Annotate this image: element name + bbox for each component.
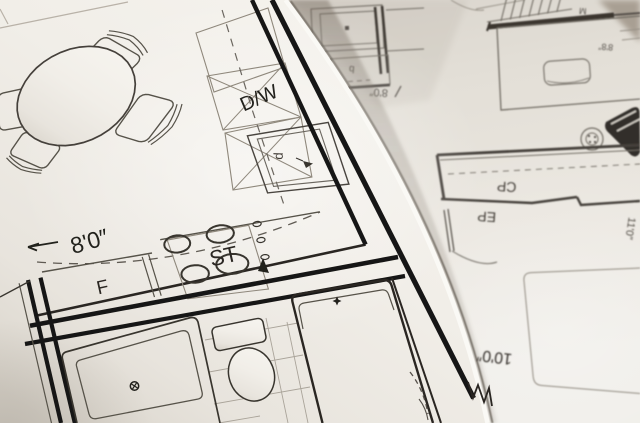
svg-text:M: M: [579, 6, 587, 16]
svg-text:d: d: [271, 152, 286, 160]
svg-text:CP: CP: [496, 178, 517, 195]
svg-text:8'8″: 8'8″: [597, 41, 613, 52]
svg-text:EP: EP: [477, 208, 497, 225]
